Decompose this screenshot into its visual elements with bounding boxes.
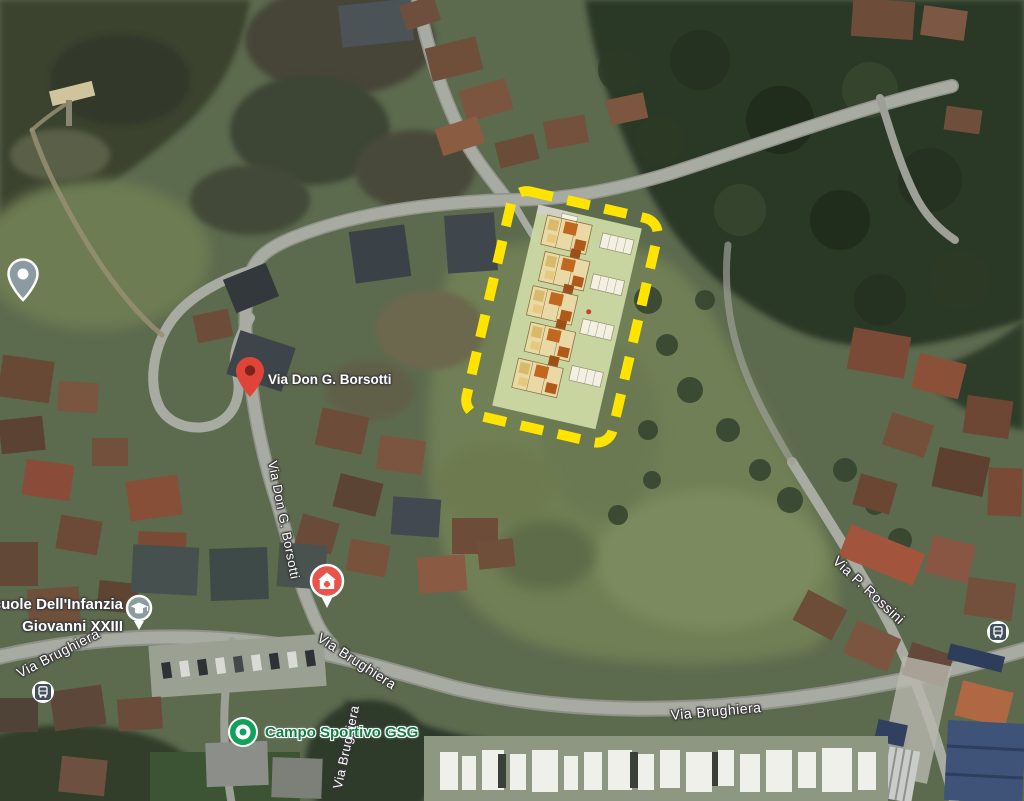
satellite-map-viewport[interactable]: Via Brughiera Via Don G. Borsotti Via Br…	[0, 0, 1024, 801]
red-map-pin-icon	[235, 356, 265, 398]
sports-pin[interactable]	[227, 716, 259, 748]
bus-icon	[986, 620, 1010, 644]
poi-pin[interactable]	[6, 258, 40, 302]
medical-pin[interactable]	[307, 562, 347, 610]
satellite-imagery	[0, 0, 1024, 801]
school-label-line2: Giovanni XXIII	[0, 616, 123, 638]
school-label[interactable]: Scuole Dell'Infanzia Giovanni XXIII	[0, 594, 123, 638]
sports-ground-icon	[227, 716, 259, 748]
medical-house-cross-icon	[307, 562, 347, 610]
sports-label[interactable]: Campo Sportivo GSG	[265, 724, 418, 741]
graduation-cap-icon	[124, 594, 154, 632]
bus-icon	[31, 680, 55, 704]
bus-stop-right[interactable]	[986, 620, 1010, 644]
gray-pin-icon	[6, 258, 40, 302]
destination-pin[interactable]	[235, 356, 265, 398]
bus-stop-left[interactable]	[31, 680, 55, 704]
school-label-line1: Scuole Dell'Infanzia	[0, 594, 123, 616]
school-pin[interactable]	[124, 594, 154, 632]
destination-pin-label: Via Don G. Borsotti	[268, 372, 392, 387]
